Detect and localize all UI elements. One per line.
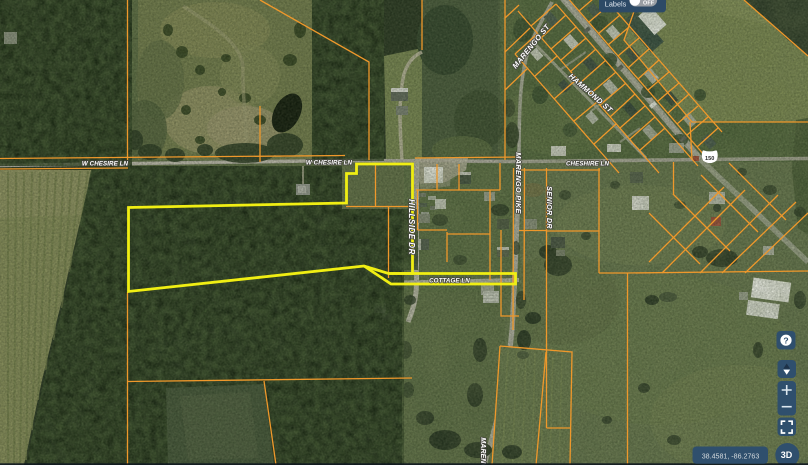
svg-text:?: ?: [783, 335, 788, 345]
svg-text:HILLSIDE DR: HILLSIDE DR: [407, 199, 416, 255]
svg-text:MARENGO PIKE: MARENGO PIKE: [514, 152, 523, 214]
svg-text:SENIOR DR: SENIOR DR: [545, 186, 554, 229]
svg-text:CHESHIRE LN: CHESHIRE LN: [566, 161, 609, 168]
svg-text:38.4581, -86.2763: 38.4581, -86.2763: [702, 452, 760, 460]
svg-text:Labels: Labels: [605, 0, 627, 8]
svg-text:MARENGO: MARENGO: [479, 437, 486, 465]
svg-text:COTTAGE LN: COTTAGE LN: [429, 278, 470, 285]
svg-text:W CHESIRE LN: W CHESIRE LN: [82, 161, 129, 168]
svg-text:W CHESIRE LN: W CHESIRE LN: [306, 160, 353, 167]
svg-text:150: 150: [705, 156, 714, 162]
svg-text:OFF: OFF: [643, 0, 655, 6]
svg-text:3D: 3D: [781, 450, 793, 460]
